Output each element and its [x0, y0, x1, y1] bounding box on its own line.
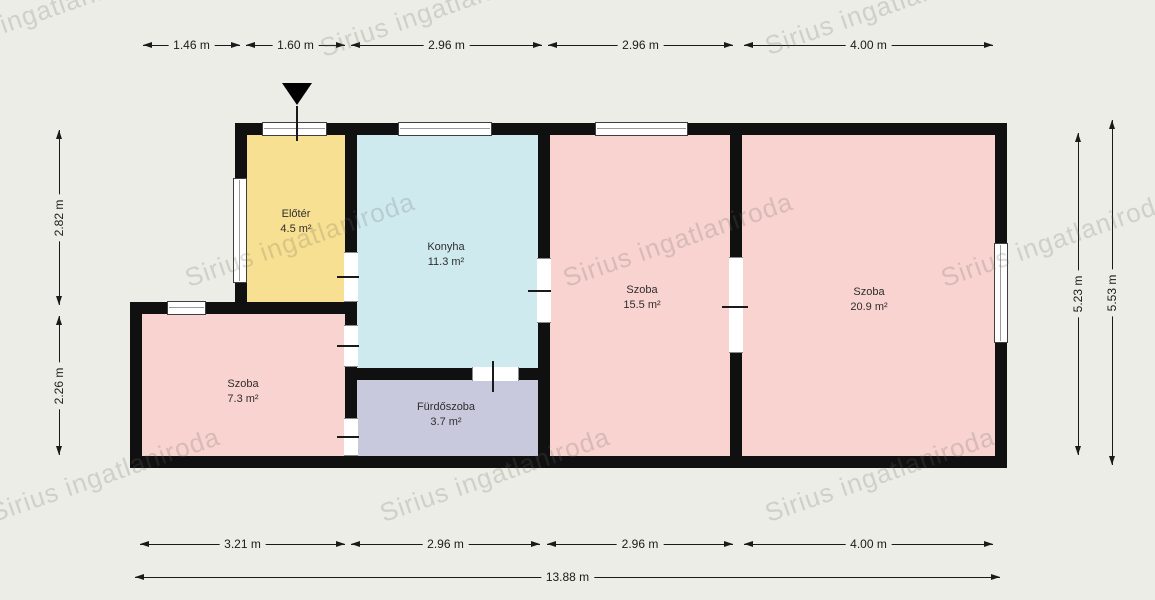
- wall-szoba7-top: [130, 302, 357, 314]
- door-mark: [337, 345, 359, 347]
- room-name: Fürdőszoba: [417, 400, 475, 415]
- dimension-bottom-4: 4.00 m: [744, 538, 993, 551]
- entrance-door-mark: [296, 106, 298, 141]
- wall-bottom: [130, 456, 1007, 468]
- entrance-door: [262, 122, 327, 136]
- door-szoba15-szoba20: [729, 257, 743, 353]
- dimension-bottom-3: 2.96 m: [547, 538, 733, 551]
- room-name: Előtér: [280, 207, 311, 222]
- dimension-total-width: 13.88 m: [135, 571, 1000, 584]
- room-name: Szoba: [850, 285, 887, 300]
- dimension-right-1: 5.23 m: [1072, 133, 1085, 455]
- door-konyha-furdoszoba: [472, 367, 519, 381]
- dimension-left-1: 2.82 m: [53, 130, 66, 305]
- room-label-eloter: Előtér 4.5 m²: [280, 207, 311, 237]
- entrance-arrow-icon: [282, 83, 312, 105]
- room-area: 4.5 m²: [280, 222, 311, 237]
- dimension-bottom-1: 3.21 m: [140, 538, 345, 551]
- watermark-text: Sirius ingatlaniroda: [1151, 0, 1155, 74]
- door-mark: [528, 290, 551, 292]
- room-area: 7.3 m²: [227, 392, 258, 407]
- room-label-szoba-7: Szoba 7.3 m²: [227, 377, 258, 407]
- window-konyha: [398, 122, 492, 136]
- room-label-konyha: Konyha 11.3 m²: [427, 240, 464, 270]
- dimension-left-2: 2.26 m: [53, 316, 66, 455]
- room-label-szoba-20: Szoba 20.9 m²: [850, 285, 887, 315]
- dimension-top-4: 2.96 m: [548, 39, 733, 52]
- wall-furdoszoba-top: [345, 368, 550, 380]
- watermark-text: Sirius ingatlaniroda: [0, 0, 159, 66]
- door-mark: [337, 276, 359, 278]
- dimension-top-2: 1.60 m: [246, 39, 345, 52]
- door-mark: [337, 436, 359, 438]
- window-szoba-20: [994, 243, 1008, 343]
- dimension-right-2: 5.53 m: [1106, 120, 1119, 465]
- window-szoba-15: [595, 122, 688, 136]
- dimension-bottom-2: 2.96 m: [351, 538, 540, 551]
- floorplan-canvas: Előtér 4.5 m² Konyha 11.3 m² Szoba 15.5 …: [0, 0, 1155, 600]
- room-area: 3.7 m²: [417, 415, 475, 430]
- door-mark: [492, 361, 494, 392]
- room-name: Szoba: [227, 377, 258, 392]
- dimension-top-3: 2.96 m: [351, 39, 542, 52]
- dimension-top-1: 1.46 m: [143, 39, 240, 52]
- room-area: 11.3 m²: [427, 255, 464, 270]
- dimension-top-5: 4.00 m: [744, 39, 993, 52]
- room-area: 20.9 m²: [850, 300, 887, 315]
- room-label-szoba-15: Szoba 15.5 m²: [623, 283, 660, 313]
- room-label-furdoszoba: Fürdőszoba 3.7 m²: [417, 400, 475, 430]
- room-name: Konyha: [427, 240, 464, 255]
- door-mark: [722, 306, 748, 308]
- watermark-text: Sirius ingatlaniroda: [761, 0, 999, 62]
- window-szoba-7: [167, 301, 206, 315]
- window-eloter: [233, 178, 247, 283]
- room-name: Szoba: [623, 283, 660, 298]
- room-area: 15.5 m²: [623, 298, 660, 313]
- wall-left-lower: [130, 302, 142, 468]
- watermark-text: Sirius ingatlaniroda: [316, 0, 554, 64]
